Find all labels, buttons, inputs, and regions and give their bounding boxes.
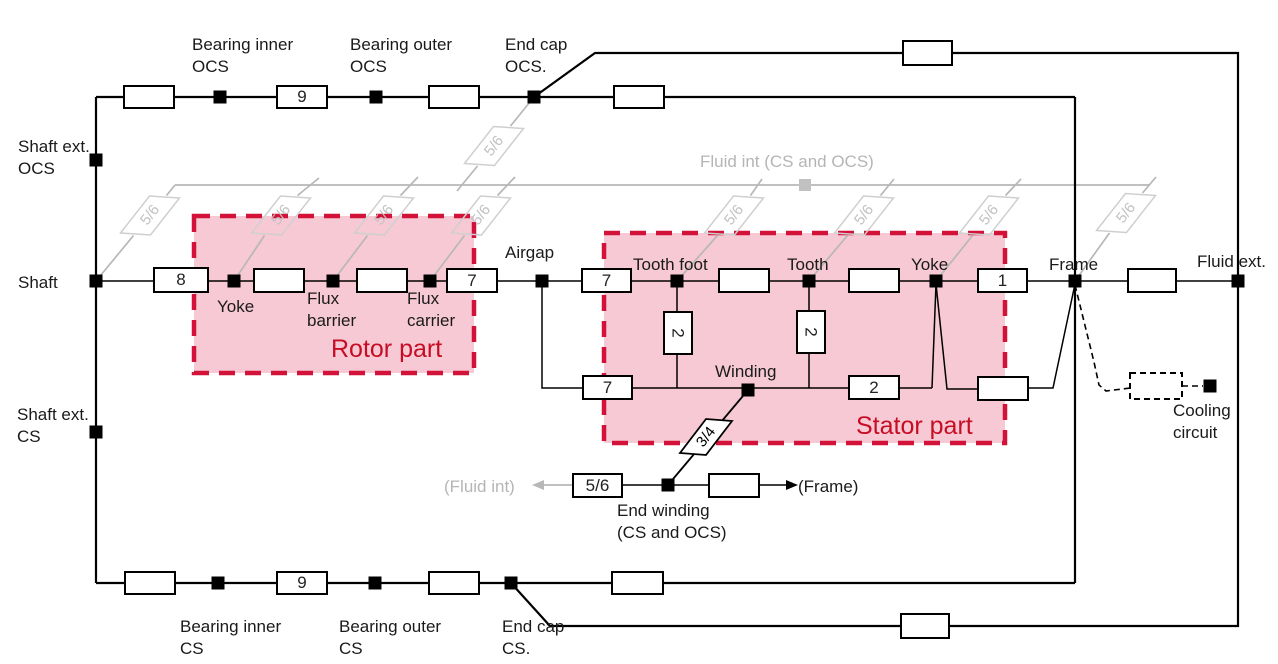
label-rotor-yoke: Yoke [217,296,254,318]
node-shaft-ext-ocs [90,154,103,167]
resistor-box-endcap-frame-cs [611,571,664,595]
box-value: 7 [602,271,611,291]
label-shaft: Shaft [18,272,58,294]
node-bearing-outer-cs [369,577,382,590]
node-shaft-ext-cs [90,426,103,439]
resistor-box-toothfoot-tooth [718,268,770,293]
resistor-box-shaft-bearing-ocs [123,85,175,109]
node-tooth [803,275,816,288]
label-bearing-outer-cs: Bearing outer CS [339,616,441,660]
resistor-box-yoke-fluxbarrier [253,268,305,293]
resistor-box-statoryoke-frame: 1 [977,268,1028,293]
label-fluid-int-arrow: (Fluid int) [444,476,515,498]
cooling-circuit-wires [1075,285,1203,399]
box-value: 2 [801,327,821,336]
resistor-box-shaft-rotor-yoke: 8 [153,267,209,293]
node-airgap [536,275,549,288]
label-stator-yoke: Yoke [911,254,948,276]
label-end-cap-cs: End cap CS. [502,616,564,660]
box-value: 7 [603,378,612,398]
thermal-network-diagram: 9 8 7 7 1 2 2 7 2 5/6 9 5/6 5/6 5/6 5/6 [0,0,1278,664]
label-end-winding: End winding (CS and OCS) [617,500,727,544]
node-end-cap-cs [505,577,518,590]
box-value: 9 [297,87,306,107]
node-stator-yoke [930,275,943,288]
box-value: 8 [176,270,185,290]
node-fluid-int [799,179,811,191]
label-fluid-int: Fluid int (CS and OCS) [700,151,874,173]
label-bearing-outer-ocs: Bearing outer OCS [350,34,452,78]
node-end-winding [662,479,675,492]
node-bearing-inner-cs [212,577,225,590]
frame-arrowhead [786,480,798,490]
node-tooth-foot [671,275,684,288]
label-end-cap-ocs: End cap OCS. [505,34,567,78]
box-value: 9 [297,573,306,593]
resistor-box-statoryoke-frame-lower [977,376,1029,401]
node-winding [742,384,755,397]
node-shaft [90,275,103,288]
resistor-box-tooth-winding: 2 [796,310,826,354]
resistor-box-endcap-fluidext-cs [900,613,950,639]
resistor-box-winding-statoryoke: 2 [848,375,900,400]
label-bearing-inner-cs: Bearing inner CS [180,616,281,660]
box-value: 5/6 [586,476,610,496]
resistor-box-fluxbarrier-fluxcarrier [356,268,408,293]
label-shaft-ext-ocs: Shaft ext. OCS [18,136,90,180]
label-cooling-circuit: Cooling circuit [1173,400,1231,444]
label-rotor-part: Rotor part [331,336,442,362]
label-flux-barrier: Flux barrier [307,288,356,332]
node-flux-carrier [424,275,437,288]
fluid-int-arrowhead [532,480,544,490]
resistor-box-airgap-toothfoot: 7 [581,268,632,293]
node-flux-barrier [327,275,340,288]
label-airgap: Airgap [505,242,554,264]
resistor-box-endwinding-frame [708,473,760,498]
box-value: 2 [668,328,688,337]
node-frame [1069,275,1082,288]
label-tooth: Tooth [787,254,829,276]
label-tooth-foot: Tooth foot [633,254,708,276]
node-end-cap-ocs [528,91,541,104]
node-rotor-yoke [228,275,241,288]
label-frame-arrow: (Frame) [798,476,858,498]
resistor-box-endwinding-fluidint: 5/6 [572,473,623,498]
label-stator-part: Stator part [856,413,973,439]
resistor-box-airgap-winding: 7 [582,375,633,400]
resistor-box-bearing-outer-ocs [428,85,480,109]
resistor-box-bearing-outer-cs [428,571,480,595]
node-bearing-inner-ocs [214,91,227,104]
label-shaft-ext-cs: Shaft ext. CS [17,404,89,448]
resistor-box-bearing-inner-ocs: 9 [276,85,328,109]
label-flux-carrier: Flux carrier [407,288,455,332]
label-frame: Frame [1049,254,1098,276]
resistor-box-bearing-inner-cs: 9 [276,571,328,595]
resistor-box-shaft-bearing-cs [124,571,176,595]
node-bearing-outer-ocs [370,91,383,104]
resistor-box-frame-fluidext [1127,268,1177,293]
resistor-box-toothfoot-winding: 2 [663,311,693,355]
node-cooling-circuit [1204,380,1217,393]
label-fluid-ext: Fluid ext. [1197,251,1266,273]
resistor-box-endcap-fluidext-ocs [902,40,953,66]
resistor-box-tooth-statoryoke [848,268,900,293]
label-bearing-inner-ocs: Bearing inner OCS [192,34,293,78]
box-value: 1 [998,271,1007,291]
box-value: 7 [467,271,476,291]
node-fluid-ext [1232,275,1245,288]
label-winding: Winding [715,361,776,383]
resistor-box-endcap-frame-ocs [613,85,665,109]
box-value: 2 [869,378,878,398]
